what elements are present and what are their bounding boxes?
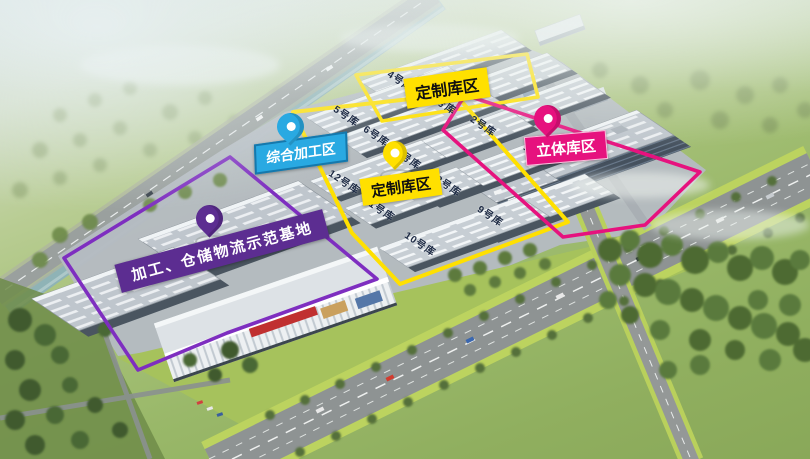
scene-illustration <box>0 0 810 459</box>
aerial-scene: 4号库 3号库 2号库 1号库 5号库 6号库 7号库 8号库 9号库 10号库… <box>0 0 810 459</box>
